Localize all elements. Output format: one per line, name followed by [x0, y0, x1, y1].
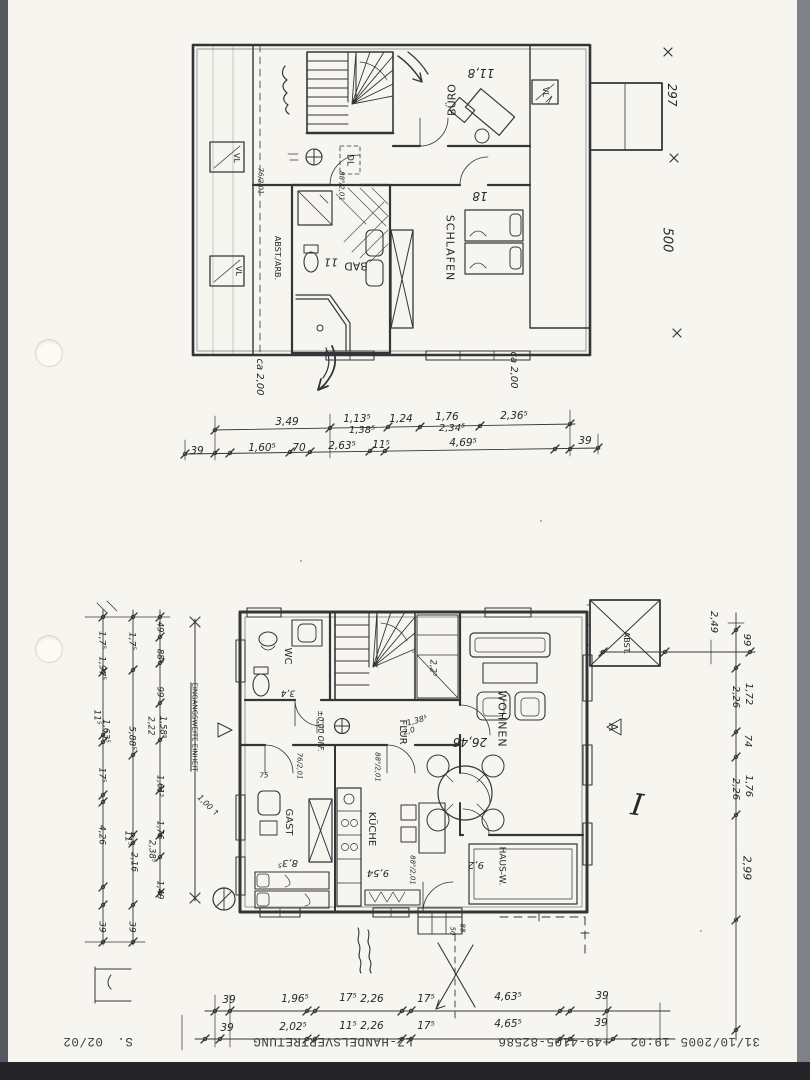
dim-label: 1,13⁵: [343, 414, 371, 425]
room-label-diele: DL: [345, 154, 354, 166]
dim-label: 2,16: [129, 852, 138, 872]
survey-circle: [213, 888, 235, 910]
upper-desk: [449, 89, 514, 143]
skylight-label: VL: [234, 266, 242, 276]
room-label-gast: GAST: [283, 808, 293, 835]
dim-label: 49: [155, 622, 164, 633]
upper-level-marker: [288, 149, 322, 165]
dim-label: 2,49: [708, 611, 718, 633]
fax-date: 31/10/2005: [680, 1034, 760, 1048]
skylight-label: VL: [541, 87, 549, 97]
dim-label: 2,2⁵: [428, 660, 437, 677]
terrace-dashed: [500, 913, 589, 957]
dim-label: 2,63⁵: [328, 441, 356, 452]
dim-label: 3,49: [275, 417, 298, 428]
dim-label: 88: [459, 924, 466, 933]
dim-label: 11⁵: [92, 709, 101, 724]
side-dim-label: 500: [661, 228, 674, 253]
dim-label: 39: [578, 436, 591, 447]
door-dim-label: 88⁵/2,01: [338, 171, 345, 201]
room-label-buero: BÜRO: [447, 84, 458, 116]
dim-label: 1,76: [155, 821, 164, 840]
dim-label: 1,7⁵: [97, 631, 106, 649]
dim-label: 2,26: [360, 1021, 383, 1032]
kueche-furniture: [337, 788, 445, 906]
fax-number: +49-4105-82586: [498, 1034, 610, 1048]
dim-label: 1,7⁵: [127, 632, 136, 650]
door-dim-label: 76/2,01: [296, 753, 303, 780]
dim-label: 39: [97, 921, 106, 932]
room-area-buero: 11,8: [468, 67, 495, 79]
ground-pantry: [417, 615, 458, 698]
dim-label: 39: [190, 446, 203, 457]
dim-label: 39: [127, 921, 136, 932]
room-area-bad: 11: [324, 257, 338, 268]
upper-stair: [307, 52, 393, 133]
entrance-note: EINGANGSWEITE EINHEIT: [191, 682, 198, 771]
upper-bath-fixtures: [296, 188, 388, 351]
dim-label: 1,61⁵: [155, 775, 164, 797]
wohnen-furniture: [427, 633, 550, 831]
room-label-hausw: HAUS-W.: [497, 847, 506, 886]
clearance-note: ca 2,00: [508, 351, 518, 388]
hausw-room: [469, 844, 577, 904]
dim-label: 17⁵: [417, 994, 435, 1005]
room-area-kueche: 9,54: [367, 867, 389, 877]
right-dim-lines: [600, 613, 755, 1040]
room-label-bad: BAD: [344, 261, 368, 272]
skylight-label: VL: [232, 153, 240, 163]
dim-label: 75: [260, 773, 269, 780]
dim-label: 39: [222, 995, 235, 1006]
dim-label: 50: [449, 927, 456, 936]
dim-label: 11⁵: [123, 830, 132, 845]
room-area-hausw: 9,2: [468, 859, 484, 869]
dim-label: 1,63⁵: [101, 719, 110, 743]
dim-label: 11⁵: [339, 1021, 357, 1032]
dim-label: 1,60⁵: [248, 443, 276, 454]
ground-stair: [335, 612, 415, 700]
dim-label: 2,99: [742, 856, 753, 881]
scanner-edge-bottom: [0, 1062, 810, 1080]
dim-label: 99: [741, 634, 751, 647]
dim-label: 1,38⁵: [349, 426, 375, 436]
dim-label: 17⁵: [417, 1021, 435, 1032]
room-label-wc: WC: [282, 648, 292, 665]
dim-label: 39: [595, 991, 608, 1002]
dim-label: 2,26: [730, 686, 740, 708]
dim-label: 1,97⁵: [97, 656, 106, 680]
door-dim-label: 88⁵/2,01: [374, 752, 381, 782]
dim-label: 1,58⁵: [158, 716, 167, 738]
room-area-wc: 3,4: [281, 688, 295, 697]
upper-roof-hatch: [193, 45, 662, 355]
upper-wardrobe: [391, 230, 413, 328]
dim-label: 17⁵: [97, 767, 106, 782]
dim-label: 4,26: [97, 825, 106, 845]
scan-speck: [300, 560, 302, 562]
dim-label: 70: [292, 443, 305, 454]
dim-label: 4,65⁵: [494, 1019, 522, 1030]
bracket-symbol: [95, 967, 131, 1003]
dim-label: 1,72: [743, 683, 753, 705]
level-note: ±0,00 OFF.: [316, 710, 324, 751]
dim-label: 2,26: [360, 994, 383, 1005]
side-dim-label: 297: [666, 84, 678, 107]
dim-label: 2,26: [730, 778, 740, 800]
dim-label: 99: [155, 687, 164, 698]
dim-label: 17⁵: [339, 993, 357, 1004]
room-label-wohnen: WOHNEN: [497, 690, 508, 747]
dim-label: 39: [594, 1018, 607, 1029]
room-label-kueche: KÜCHE: [366, 812, 376, 846]
dim-label: 11⁵: [372, 440, 390, 451]
entrance-triangle: [218, 723, 232, 737]
dim-label: 1,96⁵: [281, 994, 309, 1005]
fax-header-line: 31/10/2005 19:02 +49-4105-82586 LZ-HANDE…: [55, 1031, 760, 1051]
clearance-note: ca 2,00: [254, 358, 264, 395]
dim-label: 2,38⁵: [147, 840, 156, 862]
fax-page-number: 02/02: [63, 1034, 103, 1048]
section-marker-label: A: [607, 723, 619, 731]
fax-sender: LZ-HANDELSVERTRETUNG: [253, 1034, 413, 1048]
dim-label: 4,69⁵: [449, 438, 477, 449]
room-area-gast: 8,3⁵: [278, 857, 298, 867]
fax-page-abbr: S.: [117, 1034, 133, 1048]
door-dim-label: 88⁵/2,01: [409, 855, 416, 885]
scan-speck: [540, 520, 542, 522]
dim-label: 1,49: [155, 881, 164, 900]
room-label-abst: ABST.: [622, 632, 630, 654]
upper-bed: [465, 210, 523, 274]
dim-label: 1,76: [743, 775, 753, 797]
dim-label: 2,22: [146, 717, 155, 736]
scanned-fax-page: { "colors":{"ink":"#2b2b30","paper":"#f6…: [0, 0, 810, 1080]
dim-label: 74: [742, 735, 752, 748]
door-dim-label: 76/2,01: [257, 168, 264, 195]
room-label-schlafen: SCHLAFEN: [445, 215, 456, 281]
dim-label: 4,63⁵: [494, 992, 522, 1003]
dim-label: 88⁵: [155, 649, 164, 663]
room-area-schlafen: 18: [472, 190, 487, 202]
dim-label: 2,36⁵: [500, 411, 528, 422]
scanner-edge-right: [797, 0, 810, 1062]
dim-label: 2,34⁵: [439, 424, 465, 434]
dim-label: 5,88⁵: [127, 726, 136, 750]
dim-label: 1,24: [389, 414, 412, 425]
fax-time: 19:02: [630, 1034, 670, 1048]
room-label-abst-arb: ABST./ARB.: [273, 236, 281, 280]
room-area-wohnen: 26,46: [453, 736, 487, 748]
dim-label: 1,76: [435, 412, 458, 423]
punch-hole: [35, 339, 63, 367]
